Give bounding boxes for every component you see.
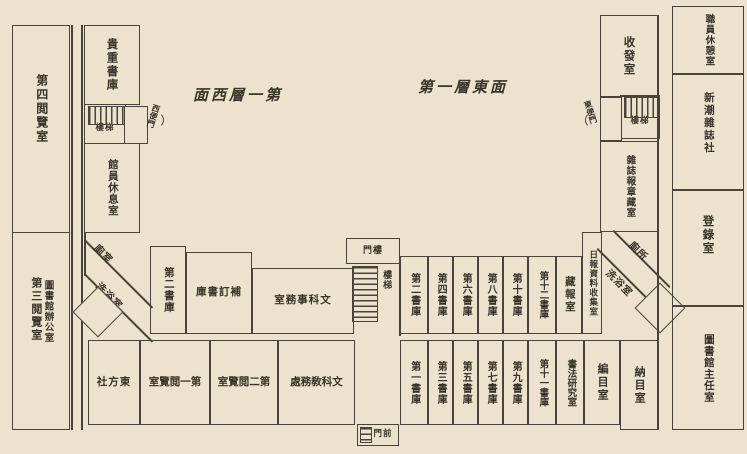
room-stack-8: 第八書庫 bbox=[478, 256, 503, 334]
front-gate-porch: 門前 bbox=[357, 424, 399, 446]
stack-7-label: 第七書庫 bbox=[485, 361, 496, 405]
left-corner-joint bbox=[84, 232, 86, 276]
stack-2-label: 第二書庫 bbox=[408, 273, 419, 317]
liberal-office-label: 室務事科文 bbox=[274, 295, 332, 307]
room-dean-office: 處務敎科文 bbox=[278, 340, 355, 425]
binding-stack-label: 庫書訂補 bbox=[196, 287, 242, 299]
magazine-store-label: 雜誌報章藏室 bbox=[624, 155, 635, 218]
room-stack-9: 第九書庫 bbox=[503, 340, 528, 425]
room-rare-stack: 貴重書庫 bbox=[84, 25, 140, 105]
door-bump-east bbox=[600, 97, 622, 141]
room-reading3-office: 第三閲覽室 圖書館辦公室 bbox=[12, 232, 70, 430]
room-daily-collect: 日報資料收集室 bbox=[582, 232, 602, 334]
dongfang-label: 社方東 bbox=[97, 377, 132, 389]
stack2-left-label: 第二書庫 bbox=[162, 267, 174, 313]
stack-4-label: 第四書庫 bbox=[435, 273, 446, 317]
cataloging-label: 編目室 bbox=[596, 363, 608, 402]
reading2-label: 室覽閲二第 bbox=[218, 377, 271, 389]
stack-12-label: 第十二書庫 bbox=[537, 271, 548, 319]
room-reading4-label: 第四閲覽室 bbox=[34, 74, 47, 144]
room-staff-rest: 館員休息室 bbox=[84, 143, 140, 233]
room-cataloging: 編目室 bbox=[584, 340, 620, 425]
room-stack-4: 第四書庫 bbox=[428, 256, 453, 334]
rare-stack-label: 貴重書庫 bbox=[106, 38, 119, 92]
room-reading2: 室覽閲二第 bbox=[210, 340, 278, 425]
staff-rest-label: 館員休息室 bbox=[106, 159, 118, 217]
room-stack-11: 第十一書庫 bbox=[528, 340, 556, 425]
stack-8-label: 第八書庫 bbox=[485, 273, 496, 317]
dispatch-label: 收發室 bbox=[623, 36, 636, 77]
stack-10-label: 第十書庫 bbox=[510, 273, 521, 317]
room-xinchao-society: 新潮雜誌社 bbox=[672, 74, 744, 190]
calligraphy-study-label: 書法研究室 bbox=[565, 359, 576, 407]
gate-porch: 門樓 bbox=[346, 238, 400, 264]
stack-5-label: 第五書庫 bbox=[460, 361, 471, 405]
room-reading4: 第四閲覽室 bbox=[12, 25, 70, 233]
room-dongfang: 社方東 bbox=[88, 340, 140, 425]
room-stack2-left: 第二書庫 bbox=[150, 246, 186, 334]
director-label: 圖書館主任室 bbox=[702, 334, 714, 403]
room-magazine-store: 雜誌報章藏室 bbox=[600, 141, 658, 232]
room-reading3-label: 第三閲覽室 bbox=[30, 277, 42, 342]
front-gate-label: 門前 bbox=[373, 430, 392, 440]
room-calligraphy-study: 書法研究室 bbox=[556, 340, 584, 425]
room-stack-12: 第十二書庫 bbox=[528, 256, 556, 334]
room-stack-7: 第七書庫 bbox=[478, 340, 503, 425]
floorplan: 面西層一第 第一層東面 第四閲覽室 第三閲覽室 圖書館辦公室 貴重書庫 樓梯 西… bbox=[0, 0, 747, 454]
toilet-left-label: 廁室 bbox=[91, 243, 114, 266]
room-registry: 登錄室 bbox=[672, 190, 744, 306]
room-binding-stack: 庫書訂補 bbox=[186, 252, 252, 334]
stack-6-label: 第六書庫 bbox=[460, 273, 471, 317]
newspaper-store-label: 藏報室 bbox=[563, 276, 575, 314]
xinchao-society-label: 新潮雜誌社 bbox=[702, 92, 714, 155]
library-office-label: 圖書館辦公室 bbox=[42, 280, 53, 343]
room-newspaper-store: 藏報室 bbox=[556, 256, 582, 334]
dean-office-label: 處務敎科文 bbox=[290, 377, 343, 389]
room-director: 圖書館主任室 bbox=[672, 306, 744, 430]
room-stack-1: 第一書庫 bbox=[400, 340, 428, 425]
deposit-label: 納目室 bbox=[633, 366, 645, 405]
registry-label: 登錄室 bbox=[702, 215, 715, 256]
stairs-box-left: 樓梯 bbox=[84, 104, 126, 144]
stairs-hatch-right bbox=[624, 97, 659, 118]
stairs-hatch-center bbox=[352, 266, 378, 322]
staff-lounge-label: 職員休憩室 bbox=[703, 14, 714, 67]
left-corridor-wall-outer bbox=[71, 25, 73, 430]
left-corridor-wall-inner bbox=[81, 25, 83, 430]
room-stack-6: 第六書庫 bbox=[453, 256, 478, 334]
stack-1-label: 第一書庫 bbox=[408, 361, 419, 405]
reading1-label: 室覽閲一第 bbox=[149, 377, 202, 389]
stairs-center-label: 樓梯 bbox=[381, 270, 391, 290]
room-stack-3: 第三書庫 bbox=[428, 340, 453, 425]
room-reading1: 室覽閲一第 bbox=[140, 340, 210, 425]
door-bump-west bbox=[124, 106, 148, 144]
header-east-face: 第一層東面 bbox=[418, 76, 508, 97]
stairs-right-label: 樓梯 bbox=[630, 117, 649, 127]
stack-3-label: 第三書庫 bbox=[435, 361, 446, 405]
room-staff-lounge: 職員休憩室 bbox=[672, 6, 744, 74]
toilet-right-label: 廁所 bbox=[626, 240, 649, 263]
bath-right-label: 洗浴室 bbox=[603, 268, 634, 299]
daily-collect-label: 日報資料收集室 bbox=[587, 250, 597, 317]
header-west-face: 面西層一第 bbox=[193, 84, 283, 105]
stack-11-label: 第十一書庫 bbox=[537, 359, 548, 407]
stairs-box-right: 樓梯 bbox=[620, 95, 660, 139]
room-deposit: 納目室 bbox=[620, 340, 658, 430]
room-dispatch: 收發室 bbox=[600, 15, 658, 97]
gate-porch-label: 門樓 bbox=[363, 246, 383, 256]
room-liberal-office: 室務事科文 bbox=[252, 268, 354, 334]
room-stack-5: 第五書庫 bbox=[453, 340, 478, 425]
room-stack-2: 第二書庫 bbox=[400, 256, 428, 334]
room-stack-10: 第十書庫 bbox=[503, 256, 528, 334]
stairs-hatch-left bbox=[88, 106, 125, 125]
stack-9-label: 第九書庫 bbox=[510, 361, 521, 405]
stairs-left-label: 樓梯 bbox=[95, 124, 114, 134]
front-gate-steps bbox=[360, 427, 372, 443]
